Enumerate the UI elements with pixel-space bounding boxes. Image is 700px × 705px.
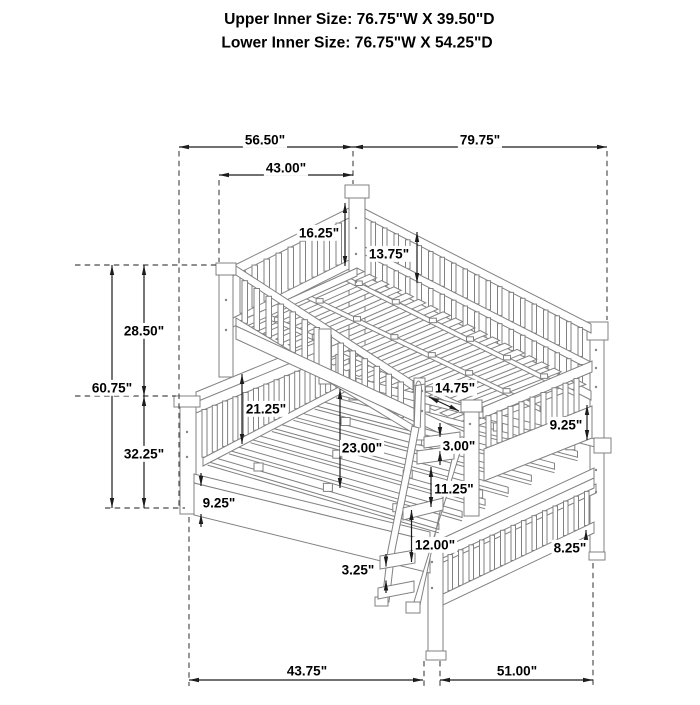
svg-text:43.75": 43.75" bbox=[287, 664, 327, 679]
svg-text:32.25": 32.25" bbox=[124, 447, 164, 462]
svg-text:12.00": 12.00" bbox=[415, 538, 455, 553]
svg-text:56.50": 56.50" bbox=[245, 133, 285, 148]
svg-text:43.00": 43.00" bbox=[266, 161, 306, 176]
svg-text:Upper Inner Size: 76.75"W X 39: Upper Inner Size: 76.75"W X 39.50"D bbox=[224, 11, 494, 28]
svg-text:Lower Inner Size: 76.75"W X 54: Lower Inner Size: 76.75"W X 54.25"D bbox=[221, 34, 492, 51]
svg-text:9.25": 9.25" bbox=[203, 496, 236, 511]
svg-text:13.75": 13.75" bbox=[369, 247, 409, 262]
svg-text:11.25": 11.25" bbox=[434, 482, 473, 497]
svg-text:9.25": 9.25" bbox=[550, 418, 583, 433]
svg-text:14.75": 14.75" bbox=[435, 381, 475, 396]
svg-text:28.50": 28.50" bbox=[124, 324, 164, 339]
svg-text:21.25": 21.25" bbox=[246, 402, 286, 417]
svg-text:51.00": 51.00" bbox=[497, 664, 537, 679]
svg-text:8.25": 8.25" bbox=[554, 541, 587, 556]
svg-text:23.00": 23.00" bbox=[342, 441, 382, 456]
svg-text:79.75": 79.75" bbox=[460, 133, 500, 148]
svg-text:3.00": 3.00" bbox=[443, 439, 476, 454]
svg-text:3.25": 3.25" bbox=[342, 563, 375, 578]
svg-text:60.75": 60.75" bbox=[92, 381, 132, 396]
svg-text:16.25": 16.25" bbox=[299, 226, 339, 241]
